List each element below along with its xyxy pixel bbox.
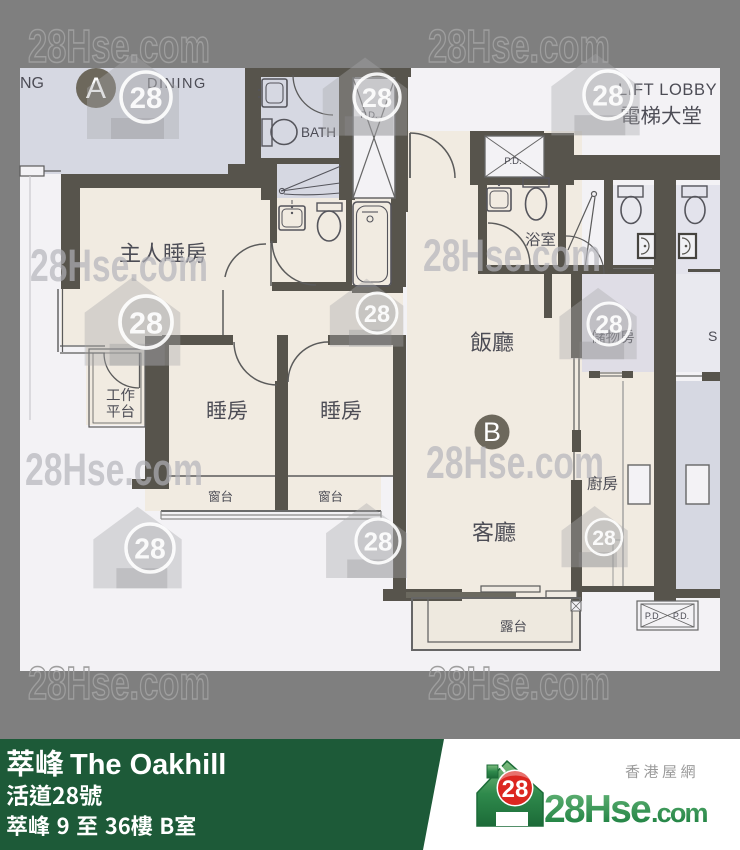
svg-text:28Hse.com: 28Hse.com bbox=[423, 230, 601, 281]
svg-text:P.D.: P.D. bbox=[673, 611, 689, 621]
svg-text:28Hse.com: 28Hse.com bbox=[28, 20, 210, 72]
svg-text:28: 28 bbox=[364, 527, 393, 557]
svg-text:28: 28 bbox=[362, 82, 392, 113]
svg-text:28: 28 bbox=[595, 312, 623, 339]
svg-text:The Oakhill: The Oakhill bbox=[70, 749, 226, 781]
svg-text:28: 28 bbox=[502, 776, 529, 803]
svg-text:28: 28 bbox=[129, 305, 163, 340]
svg-text:28Hse.com: 28Hse.com bbox=[30, 240, 208, 291]
svg-text:S: S bbox=[708, 328, 717, 344]
svg-text:28Hse.com: 28Hse.com bbox=[25, 444, 203, 495]
svg-text:28: 28 bbox=[134, 534, 166, 566]
svg-text:28: 28 bbox=[130, 82, 163, 115]
svg-text:P.D.: P.D. bbox=[645, 611, 661, 621]
svg-text:NG: NG bbox=[20, 75, 44, 92]
svg-text:28: 28 bbox=[364, 302, 390, 328]
svg-text:28Hse.com: 28Hse.com bbox=[428, 657, 610, 709]
svg-text:28: 28 bbox=[592, 81, 624, 113]
svg-text:28Hse.com: 28Hse.com bbox=[426, 437, 604, 488]
svg-text:28Hse.com: 28Hse.com bbox=[28, 657, 210, 709]
svg-text:P.D.: P.D. bbox=[504, 156, 521, 167]
svg-text:28: 28 bbox=[592, 526, 616, 550]
